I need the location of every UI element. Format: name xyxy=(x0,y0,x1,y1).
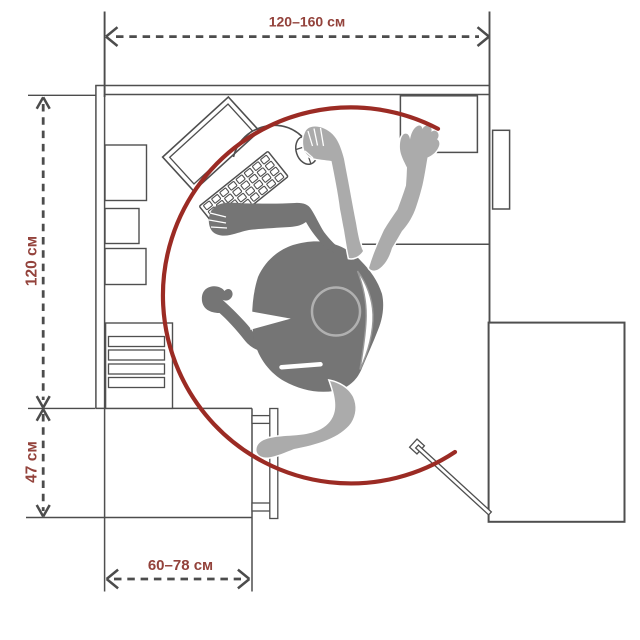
svg-text:120 см: 120 см xyxy=(23,236,40,286)
svg-text:120–160 см: 120–160 см xyxy=(269,14,346,30)
svg-text:60–78 см: 60–78 см xyxy=(148,557,213,574)
svg-text:47 см: 47 см xyxy=(23,441,40,483)
